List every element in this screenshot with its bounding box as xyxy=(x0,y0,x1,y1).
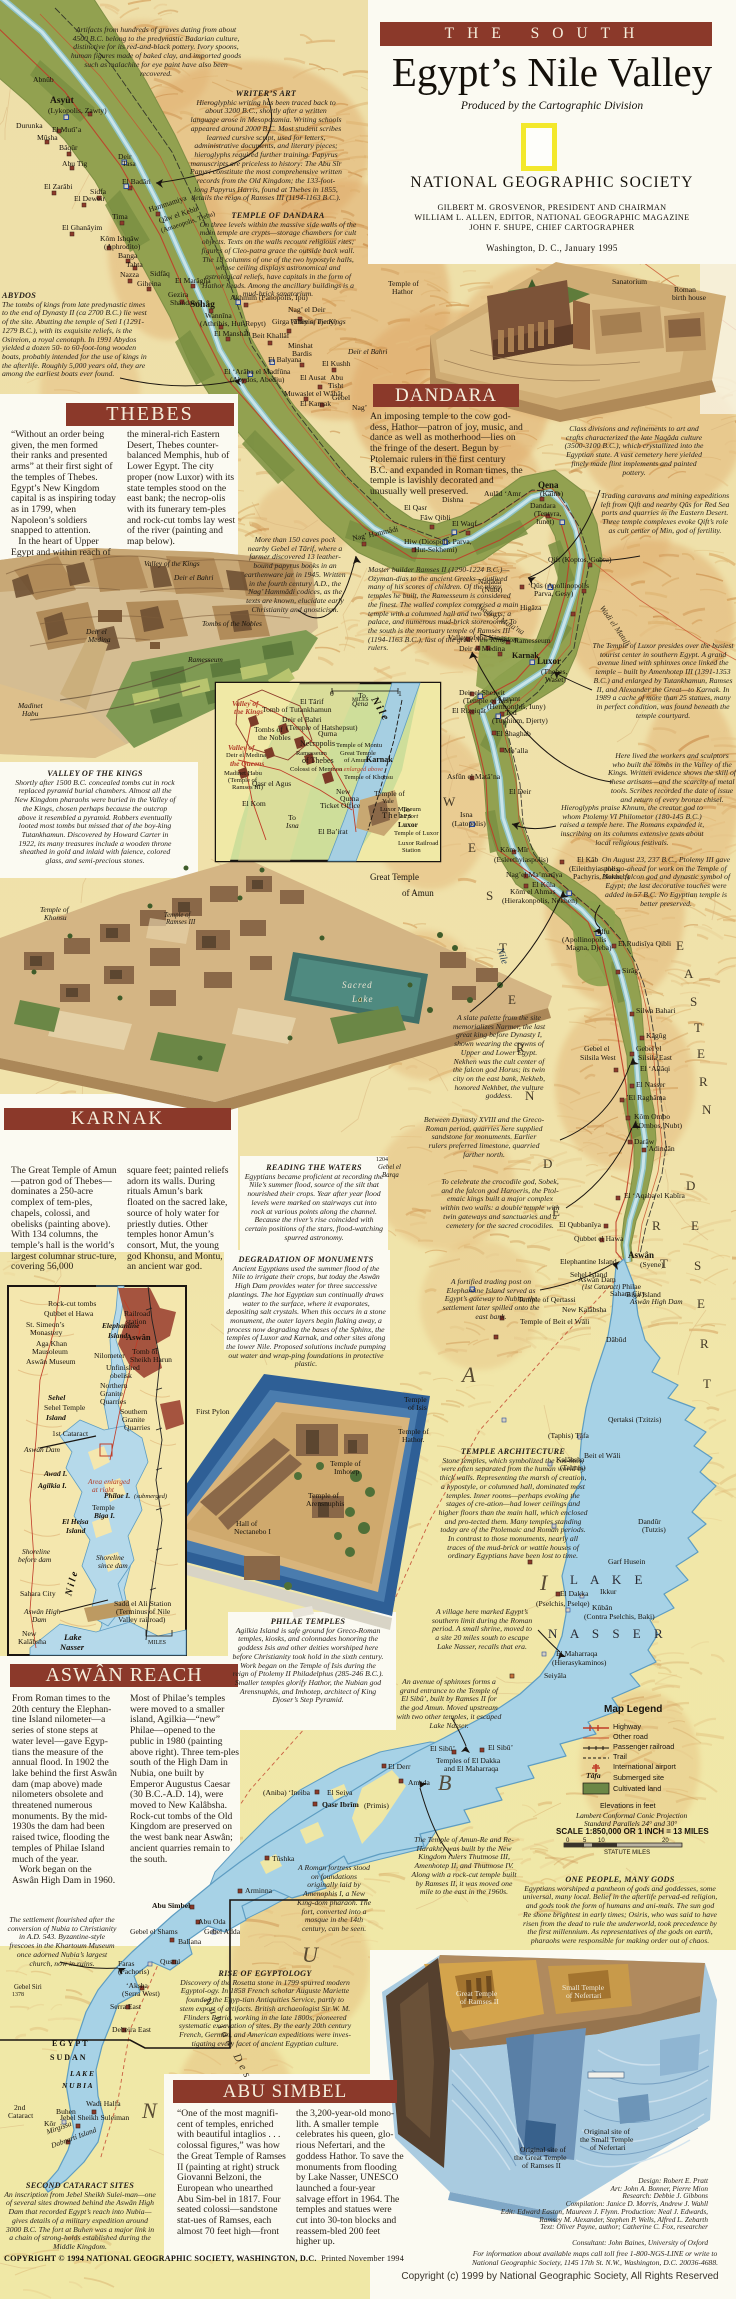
svg-text:R: R xyxy=(700,1336,709,1351)
svg-text:S: S xyxy=(690,994,697,1009)
svg-text:R: R xyxy=(699,1074,708,1089)
svg-text:E: E xyxy=(691,1218,699,1233)
svg-text:R: R xyxy=(652,1218,661,1233)
svg-text:S: S xyxy=(694,1258,701,1273)
svg-text:S: S xyxy=(486,888,493,903)
svg-text:A: A xyxy=(460,1362,476,1387)
svg-text:N: N xyxy=(702,1102,712,1117)
svg-text:B: B xyxy=(438,1770,451,1795)
svg-text:T: T xyxy=(694,1020,702,1035)
svg-text:E: E xyxy=(468,840,476,855)
svg-text:A: A xyxy=(684,966,694,981)
svg-text:E: E xyxy=(508,992,516,1007)
svg-text:E: E xyxy=(697,1046,705,1061)
svg-text:E: E xyxy=(697,1296,705,1311)
svg-text:U: U xyxy=(302,1942,320,1967)
svg-text:N: N xyxy=(141,2098,158,2123)
svg-text:D: D xyxy=(686,1178,695,1193)
svg-text:E: E xyxy=(676,938,684,953)
svg-text:T: T xyxy=(703,1376,711,1391)
svg-text:W: W xyxy=(443,794,456,809)
